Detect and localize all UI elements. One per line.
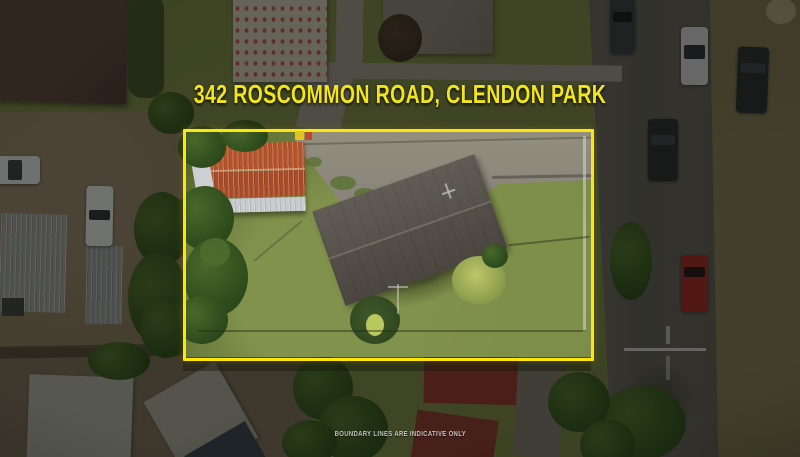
tree-roadside [610, 222, 652, 300]
neighbor-roof-bottom-left [27, 374, 134, 457]
road-marking-dash [666, 356, 670, 380]
car-windshield [651, 135, 675, 145]
tree [88, 342, 150, 380]
car-white-road [681, 27, 708, 85]
dark-shrub [378, 14, 422, 62]
road-marking-stop-line [624, 348, 706, 351]
marker-yellow [295, 131, 304, 140]
aerial-property-photo: 342 ROSCOMMON ROAD, CLENDON PARK BOUNDAR… [0, 0, 800, 457]
road-marking-dash [666, 326, 670, 344]
car-windshield [684, 267, 705, 277]
car-red-driving [681, 255, 708, 312]
metal-shed-left-2 [85, 246, 122, 325]
driveway-entrance-upper [335, 0, 363, 70]
address-title: 342 ROSCOMMON ROAD, CLENDON PARK [0, 81, 800, 108]
parked-suv-dark [610, 0, 635, 54]
car-windshield [740, 63, 765, 74]
address-title-text: 342 ROSCOMMON ROAD, CLENDON PARK [194, 81, 607, 108]
marker-orange [305, 132, 312, 140]
parked-car-white-top-left [0, 156, 40, 184]
tree-cluster-bottom [282, 420, 337, 457]
property-boundary-outline [183, 129, 594, 361]
car-windshield [89, 210, 110, 220]
boundary-disclaimer: BOUNDARY LINES ARE INDICATIVE ONLY [0, 431, 800, 438]
shed-opening [2, 298, 24, 316]
neighbor-roof-speckled [233, 0, 327, 82]
car-windshield [613, 12, 632, 22]
car-black-road [648, 119, 678, 181]
parked-van-white-left [85, 186, 113, 246]
boundary-disclaimer-text: BOUNDARY LINES ARE INDICATIVE ONLY [334, 431, 465, 438]
car-window [8, 160, 22, 180]
car-roof [684, 45, 705, 59]
